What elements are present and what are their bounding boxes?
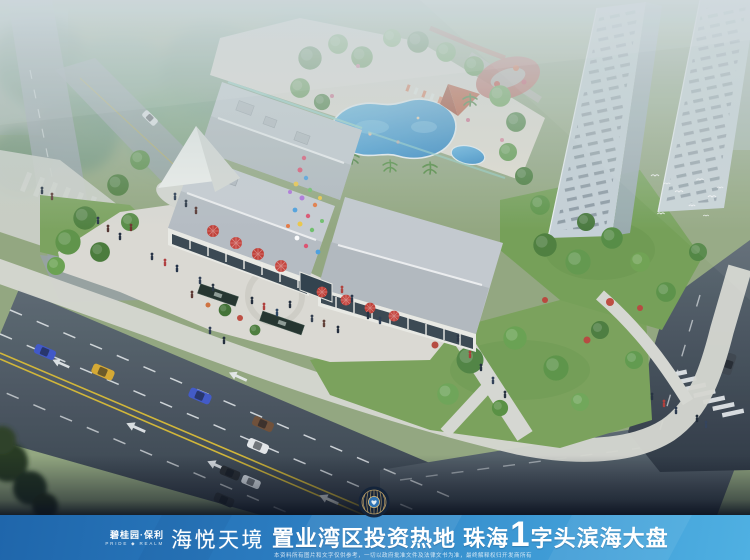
promo-banner: 碧桂园·保利 PRIDE ◆ REALM 海悦天境 置业湾区投资热地 珠海 1 … [0,515,750,560]
developer-logos: 碧桂园·保利 PRIDE ◆ REALM [94,531,164,547]
project-name: 海悦天境 [171,524,265,554]
disclaimer-text: 本资料所有图片和文字仅供参考，一切以政府批准文件及法律文书为准，最终解释权归开发… [274,551,532,559]
developer-names: 碧桂园·保利 [94,531,164,540]
aerial-render-svg [0,0,750,515]
headline-number: 1 [510,517,529,553]
developer-tagline: PRIDE ◆ REALM [94,542,164,547]
brand-block: 碧桂园·保利 PRIDE ◆ REALM 海悦天境 [94,524,265,554]
atmosphere [0,0,750,515]
promo-poster: 碧桂园·保利 PRIDE ◆ REALM 海悦天境 置业湾区投资热地 珠海 1 … [0,0,750,560]
project-seal-badge [355,483,393,519]
aerial-render [0,0,750,515]
headline-part2: 字头滨海大盘 [531,521,669,557]
